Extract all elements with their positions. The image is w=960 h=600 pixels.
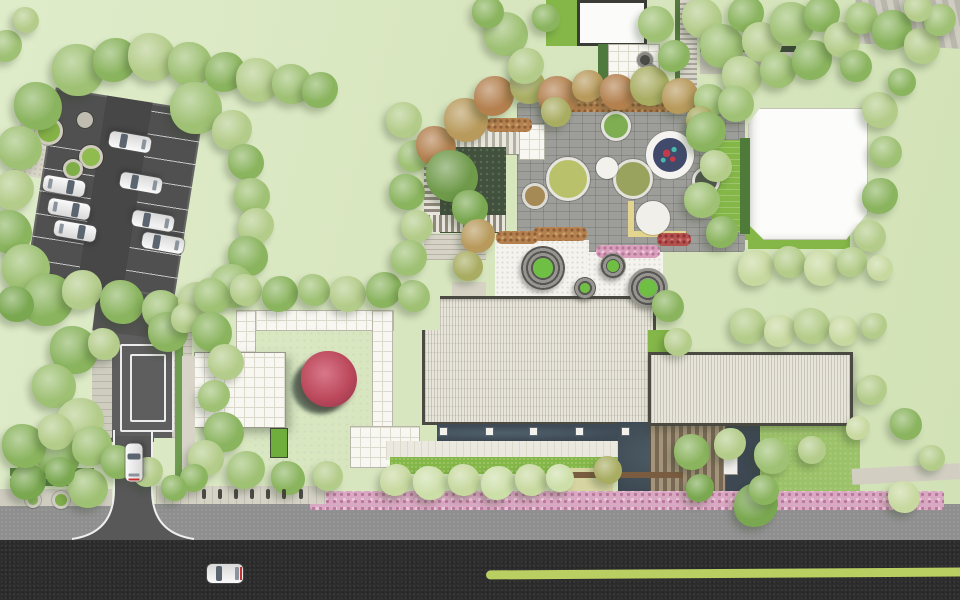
car-rear-window [47, 178, 53, 189]
car-rear-window [141, 139, 147, 150]
car [47, 197, 91, 220]
car-windshield [216, 565, 222, 581]
car-rear-window [235, 567, 238, 580]
car-taillight [240, 566, 242, 579]
car [131, 209, 175, 232]
car-windshield [127, 453, 141, 459]
car-windshield [119, 134, 128, 148]
car-windshield [142, 213, 151, 227]
car [119, 171, 163, 194]
car [53, 219, 97, 242]
car-layer [0, 0, 960, 600]
car-rear-window [128, 473, 140, 476]
car [108, 130, 152, 153]
site-plan-canvas [0, 0, 960, 600]
car-rear-window [58, 223, 64, 234]
car-windshield [77, 225, 86, 239]
car-windshield [71, 203, 80, 217]
car-windshield [130, 175, 139, 189]
car-rear-window [164, 218, 170, 229]
car-windshield [66, 180, 75, 194]
car-rear-window [152, 180, 158, 191]
car [207, 564, 243, 583]
car-windshield [152, 235, 161, 249]
car [126, 443, 143, 481]
car-taillight [128, 478, 140, 480]
car [42, 174, 86, 197]
car-rear-window [52, 201, 58, 212]
car-rear-window [174, 240, 180, 251]
car [141, 231, 185, 254]
